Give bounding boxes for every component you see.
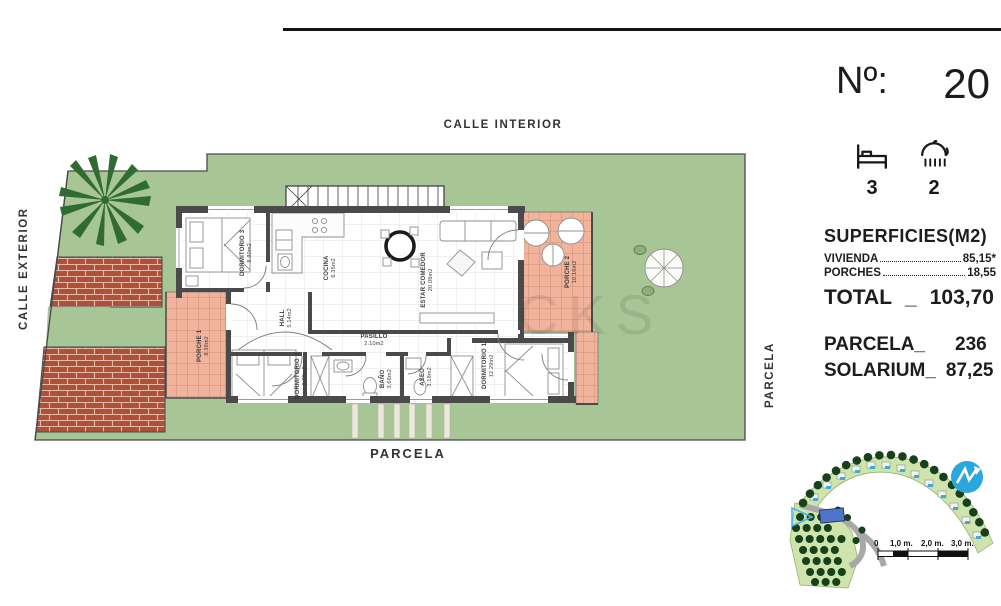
- room-label-bano: BAÑO 3.68m2: [380, 344, 394, 414]
- room-label-aseo: ASEO 3.18m2: [420, 342, 434, 412]
- dotted-leader: [880, 261, 960, 262]
- parcela-row: PARCELA_ 236: [824, 334, 996, 356]
- room-label-dormitorio3: DORMITORIO 3 8.90m2: [240, 218, 254, 288]
- unit-number-row: Nº: 20: [836, 60, 990, 108]
- boundary-label-bottom: PARCELA: [360, 446, 456, 461]
- bathroom-count: 2: [916, 177, 952, 200]
- compass-icon: [951, 461, 983, 493]
- sitemap: [790, 455, 993, 588]
- surfaces-panel: SUPERFICIES(M2) VIVIENDA 85,15* PORCHES …: [824, 226, 996, 382]
- unit-number: 20: [943, 60, 990, 108]
- room-label-hall: HALL 5.14m2: [280, 283, 294, 353]
- floorplan-page: CALLE INTERIOR CALLE EXTERIOR PARCELA PA…: [0, 0, 1001, 606]
- room-label-estar-comedor: ESTAR COMEDOR 20.08m2: [421, 245, 435, 315]
- room-label-pasillo: PASILLO 2.10m2: [339, 334, 409, 348]
- bed-icon: [855, 142, 889, 170]
- scale-label-2: 2,0 m.: [921, 539, 944, 548]
- surfaces-title: SUPERFICIES(M2): [824, 226, 996, 247]
- bathrooms-stat: 2: [916, 140, 952, 200]
- dotted-leader: [883, 275, 965, 276]
- room-label-dormitorio1: DORMITORIO 1 12.29m2: [482, 331, 496, 401]
- scale-bar: [878, 548, 968, 560]
- surface-row-vivienda: VIVIENDA 85,15*: [824, 253, 996, 265]
- plot-highlight: [819, 508, 844, 523]
- solarium-row: SOLARIUM_ 87,25: [824, 360, 996, 382]
- bedroom-count: 3: [852, 177, 892, 200]
- scale-label-3: 3,0 m.: [951, 539, 974, 548]
- scale-label-0: 0: [874, 539, 878, 548]
- street-label-left: CALLE EXTERIOR: [18, 205, 30, 333]
- surface-row-porches: PORCHES 18,55: [824, 267, 996, 279]
- scale-label-1: 1,0 m.: [890, 539, 913, 548]
- unit-number-label: Nº:: [836, 60, 888, 103]
- watermark: CKS: [518, 282, 663, 347]
- boundary-label-right: PARCELA: [764, 338, 776, 412]
- room-label-cocina: COCINA 6.35m2: [324, 233, 338, 303]
- bedrooms-stat: 3: [852, 142, 892, 200]
- room-label-porche2: PORCHE 2 10.16m2: [565, 237, 579, 307]
- room-label-porche1: PORCHE 1 8.39m2: [197, 311, 211, 381]
- street-label-top: CALLE INTERIOR: [440, 119, 566, 131]
- room-label-dormitorio2: DORMITORIO 2 9.28m2: [295, 341, 309, 411]
- shower-icon: [919, 140, 949, 170]
- total-row: TOTAL _ 103,70: [824, 286, 996, 310]
